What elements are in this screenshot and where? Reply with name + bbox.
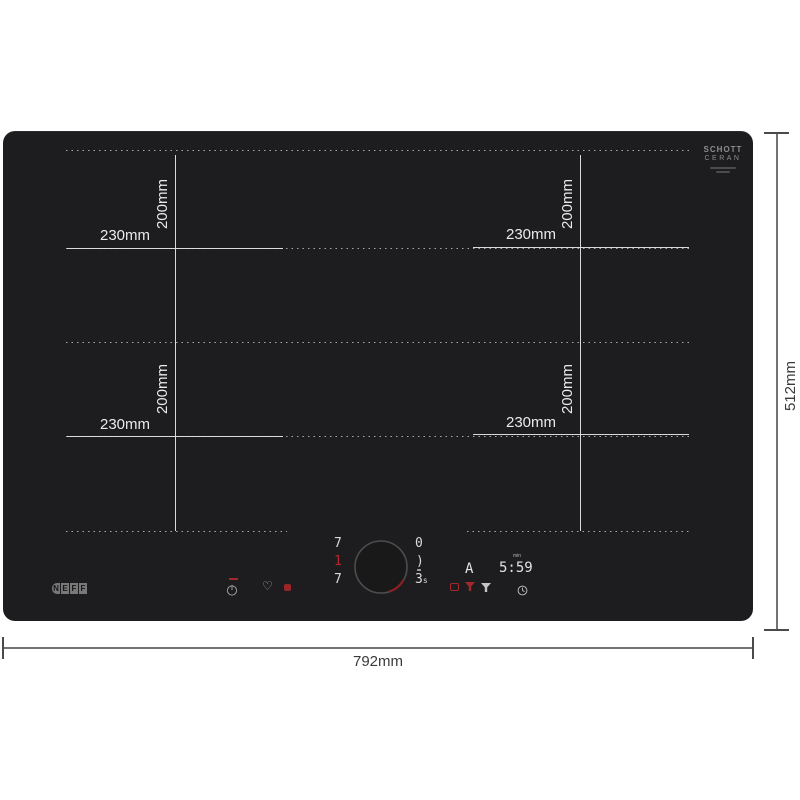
zone-height-label: 200mm xyxy=(154,179,171,229)
power-icon xyxy=(226,583,238,595)
height-dimension-line xyxy=(776,133,778,630)
left-zone-level-top: 7 xyxy=(334,537,342,551)
zone-separator-dashed-line xyxy=(66,342,693,343)
dimension-tick xyxy=(764,132,789,134)
zone-height-line xyxy=(175,155,176,344)
zone-width-label: 230mm xyxy=(506,226,556,244)
width-dimension-line xyxy=(3,647,753,649)
timer-time-display: 5:59 xyxy=(499,560,533,576)
induction-hob-surface: 230mm 200mm 230mm 200mm 230mm 200mm 230m… xyxy=(3,131,753,621)
neff-logo-letter: N xyxy=(52,583,60,594)
schott-ceran-line1: SCHOTT xyxy=(691,145,755,154)
favorite-heart-icon: ♡ xyxy=(262,579,273,593)
level-marker xyxy=(417,569,421,571)
zone-width-label: 230mm xyxy=(100,416,150,434)
height-dimension-label: 512mm xyxy=(782,361,799,411)
neff-logo-letter: F xyxy=(70,583,78,594)
dimension-tick xyxy=(2,637,4,659)
neff-logo: N E F F xyxy=(52,583,87,594)
heat-indicator-bar xyxy=(229,578,238,580)
zone-width-line xyxy=(473,434,689,435)
zone-height-label: 200mm xyxy=(154,364,171,414)
zone-width-line xyxy=(473,247,689,248)
timer-clock-icon xyxy=(517,583,528,594)
pan-icon xyxy=(450,583,459,591)
zone-width-label: 230mm xyxy=(506,414,556,432)
twistpad-knob xyxy=(352,538,410,596)
schott-ceran-logo: SCHOTT CERAN xyxy=(691,145,755,173)
left-zone-level-bottom: 7 xyxy=(334,573,342,587)
timer-mode-display: A xyxy=(465,561,473,577)
zone-height-label: 200mm xyxy=(559,364,576,414)
funnel-white-icon xyxy=(481,583,491,592)
zone-height-line xyxy=(580,155,581,344)
fine-print-line xyxy=(710,167,736,169)
funnel-red-icon xyxy=(465,582,475,591)
zone-height-line xyxy=(175,342,176,531)
neff-logo-letter: E xyxy=(61,583,69,594)
timer-unit-label: min xyxy=(513,553,521,559)
zone-height-line xyxy=(580,342,581,531)
heat-indicator-dot xyxy=(284,584,291,591)
level-value: 3 xyxy=(415,572,423,587)
schott-ceran-line2: CERAN xyxy=(691,155,755,162)
width-dimension-label: 792mm xyxy=(338,653,418,670)
zone-separator-dashed-line xyxy=(66,531,287,532)
product-dimension-diagram: 230mm 200mm 230mm 200mm 230mm 200mm 230m… xyxy=(0,0,800,800)
zone-height-label: 200mm xyxy=(559,179,576,229)
dimension-tick xyxy=(752,637,754,659)
right-zone-level-middle: ) xyxy=(416,555,424,569)
zone-width-label: 230mm xyxy=(100,227,150,245)
level-unit: s xyxy=(423,576,428,585)
right-zone-level-top: 0 xyxy=(415,537,423,551)
left-zone-level-middle: 1 xyxy=(334,555,342,569)
zone-separator-dashed-line xyxy=(467,531,690,532)
zone-separator-dashed-line xyxy=(66,150,693,151)
dimension-tick xyxy=(764,629,789,631)
fine-print-line xyxy=(716,171,730,173)
neff-logo-letter: F xyxy=(79,583,87,594)
right-zone-level-bottom: 3s xyxy=(415,573,428,588)
